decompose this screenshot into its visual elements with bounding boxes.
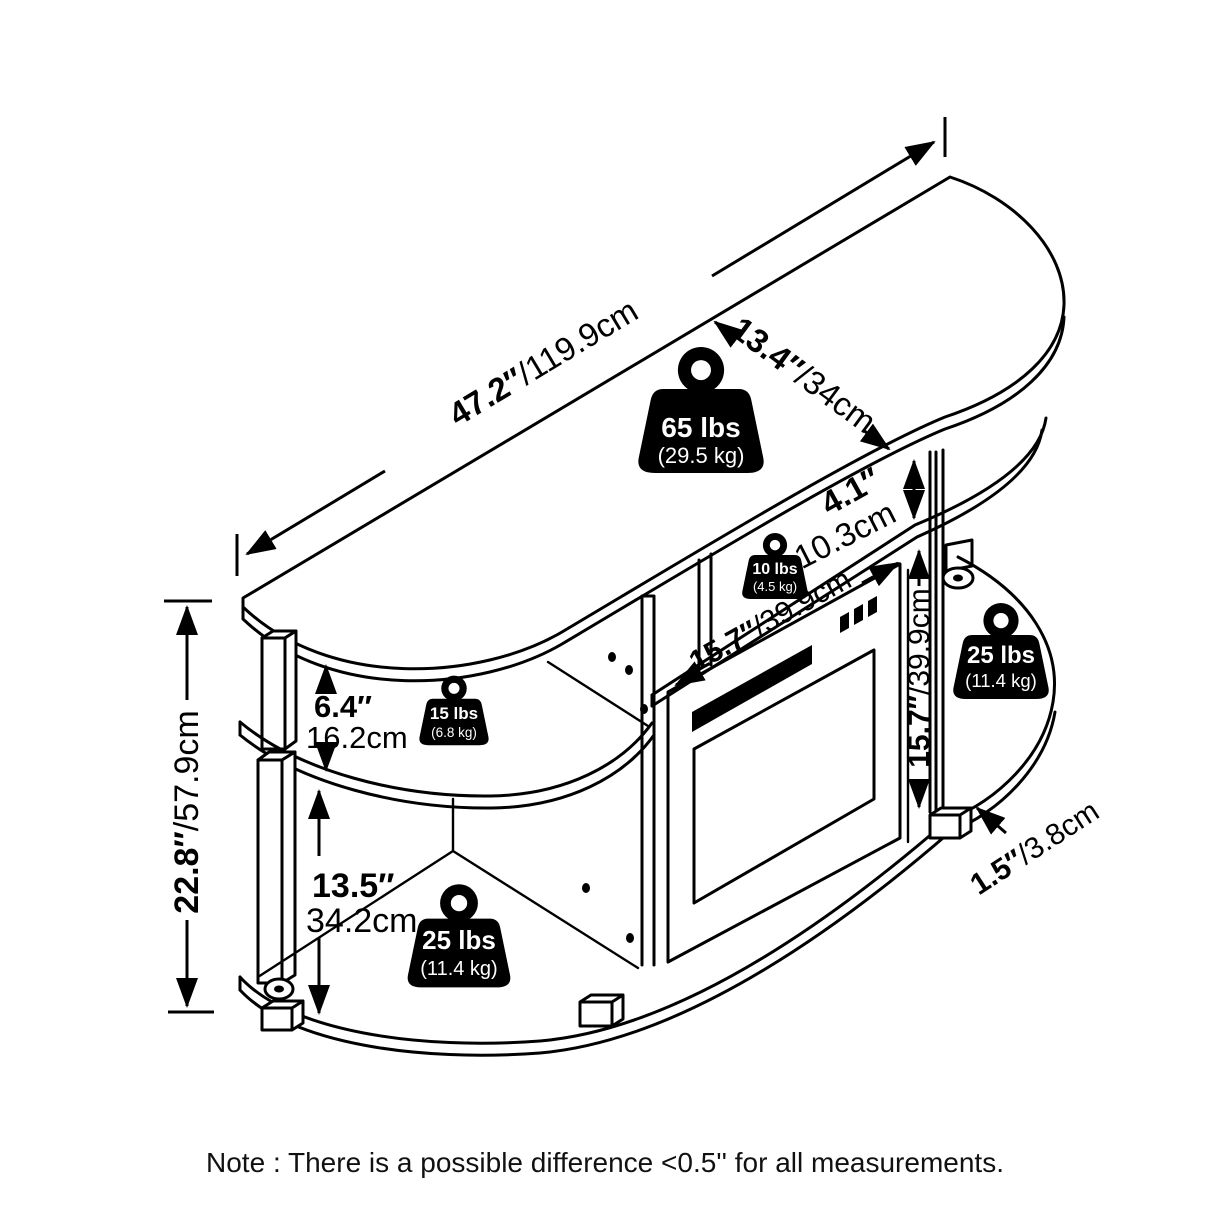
weight-top-lbs: 65 lbs — [661, 412, 740, 443]
weight-upper-left-kg: (6.8 kg) — [431, 725, 477, 740]
weight-mid-lbs: 10 lbs — [752, 561, 797, 578]
weight-right-kg: (11.4 kg) — [965, 670, 1037, 691]
dim-total-height-label: 22.8″/57.9cm — [168, 710, 206, 913]
dim-fireplace-height-label: 15.7″/39.9cm — [903, 588, 936, 767]
dim-upper-opening-in: 6.4″ — [314, 689, 372, 724]
weight-lower-left-lbs: 25 lbs — [422, 925, 496, 955]
weight-lower-left-kg: (11.4 kg) — [420, 958, 497, 980]
dim-upper-opening-cm: 16.2cm — [306, 720, 408, 755]
weight-right-lbs: 25 lbs — [967, 642, 1035, 669]
dim-fireplace-height: 15.7″/39.9cm — [903, 551, 936, 807]
weight-badge-upper-left: 15 lbs (6.8 kg) — [419, 676, 488, 746]
center-divider — [642, 596, 654, 965]
caster-wheel-left — [265, 979, 293, 999]
weight-badge-lower-left: 25 lbs (11.4 kg) — [408, 884, 511, 987]
left-upper-post — [262, 631, 296, 749]
measurement-note: Note : There is a possible difference <0… — [206, 1147, 1004, 1178]
dim-upper-opening: 6.4″ 16.2cm — [306, 666, 408, 770]
left-lower-post — [258, 752, 295, 983]
dim-lower-opening-in: 13.5″ — [312, 867, 394, 905]
dim-leg-height-label: 1.5″/3.8cm — [965, 794, 1106, 901]
screw-holes — [582, 652, 648, 943]
dim-lower-opening-cm: 34.2cm — [306, 902, 418, 940]
dimension-diagram-page: 47.2″/119.9cm 13.4″/34cm 4.1″ 10.3cm 15.… — [0, 0, 1214, 1214]
weight-badge-right: 25 lbs (11.4 kg) — [953, 603, 1049, 699]
dim-total-height: 22.8″/57.9cm — [164, 601, 214, 1012]
weight-upper-left-lbs: 15 lbs — [430, 704, 478, 723]
tv-stand-dimension-diagram: 47.2″/119.9cm 13.4″/34cm 4.1″ 10.3cm 15.… — [0, 0, 1214, 1214]
dim-lower-opening: 13.5″ 34.2cm — [306, 791, 418, 1013]
weight-top-kg: (29.5 kg) — [658, 443, 745, 468]
dim-leg-height: 1.5″/3.8cm — [965, 794, 1106, 901]
weight-mid-kg: (4.5 kg) — [753, 579, 797, 594]
